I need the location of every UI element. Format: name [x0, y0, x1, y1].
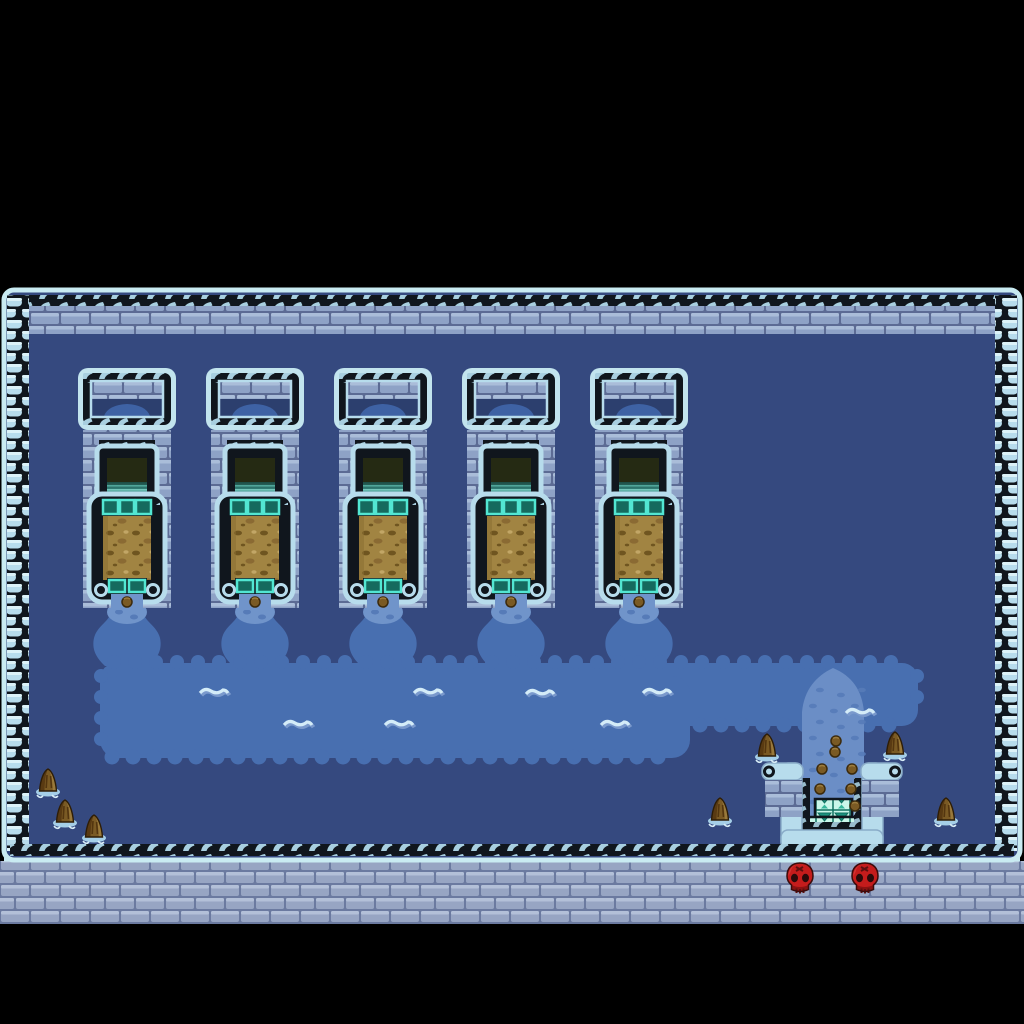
water-chute-unit-1 [78, 368, 176, 610]
skull-decoration-1 [787, 863, 813, 894]
left-wave-border [7, 295, 29, 851]
drain-brick-pad-left [765, 780, 802, 817]
water-chute-unit-4 [462, 368, 560, 610]
drain-brick-pad-right [862, 780, 899, 817]
skull-decoration-2 [852, 863, 878, 894]
top-brick-wall [28, 306, 996, 334]
game-viewport[interactable] [0, 0, 1024, 1024]
bottom-teeth-border [4, 844, 1020, 862]
water-chute-unit-5 [590, 368, 688, 610]
drain-grate-upper [815, 799, 852, 817]
right-wave-border [995, 295, 1017, 851]
water-chute-unit-2 [206, 368, 304, 610]
drain-curl-right [891, 767, 900, 776]
game-map-canvas[interactable] [0, 0, 1024, 1024]
water-pool-main [100, 676, 690, 758]
water-chute-unit-3 [334, 368, 432, 610]
top-teeth-border [10, 295, 1014, 306]
drain-curl-left [765, 767, 774, 776]
chute-units-layer [78, 368, 688, 610]
